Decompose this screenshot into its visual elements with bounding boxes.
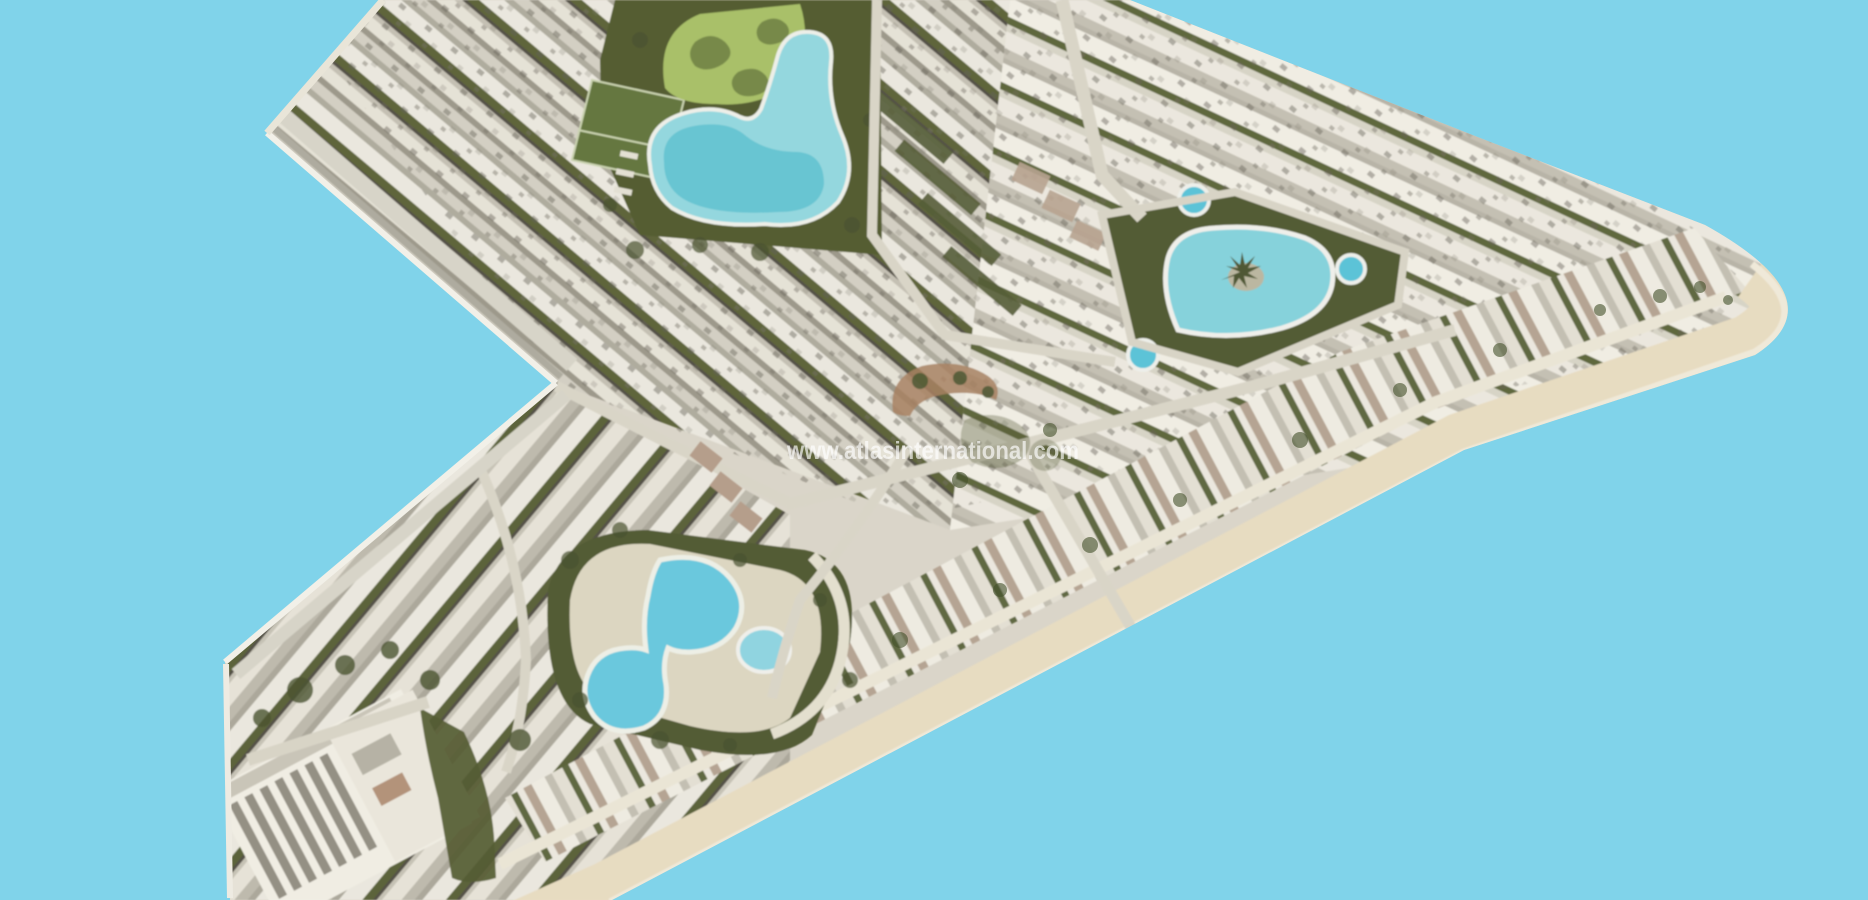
svg-text:www.atlasinternational.com: www.atlasinternational.com — [786, 437, 1079, 465]
